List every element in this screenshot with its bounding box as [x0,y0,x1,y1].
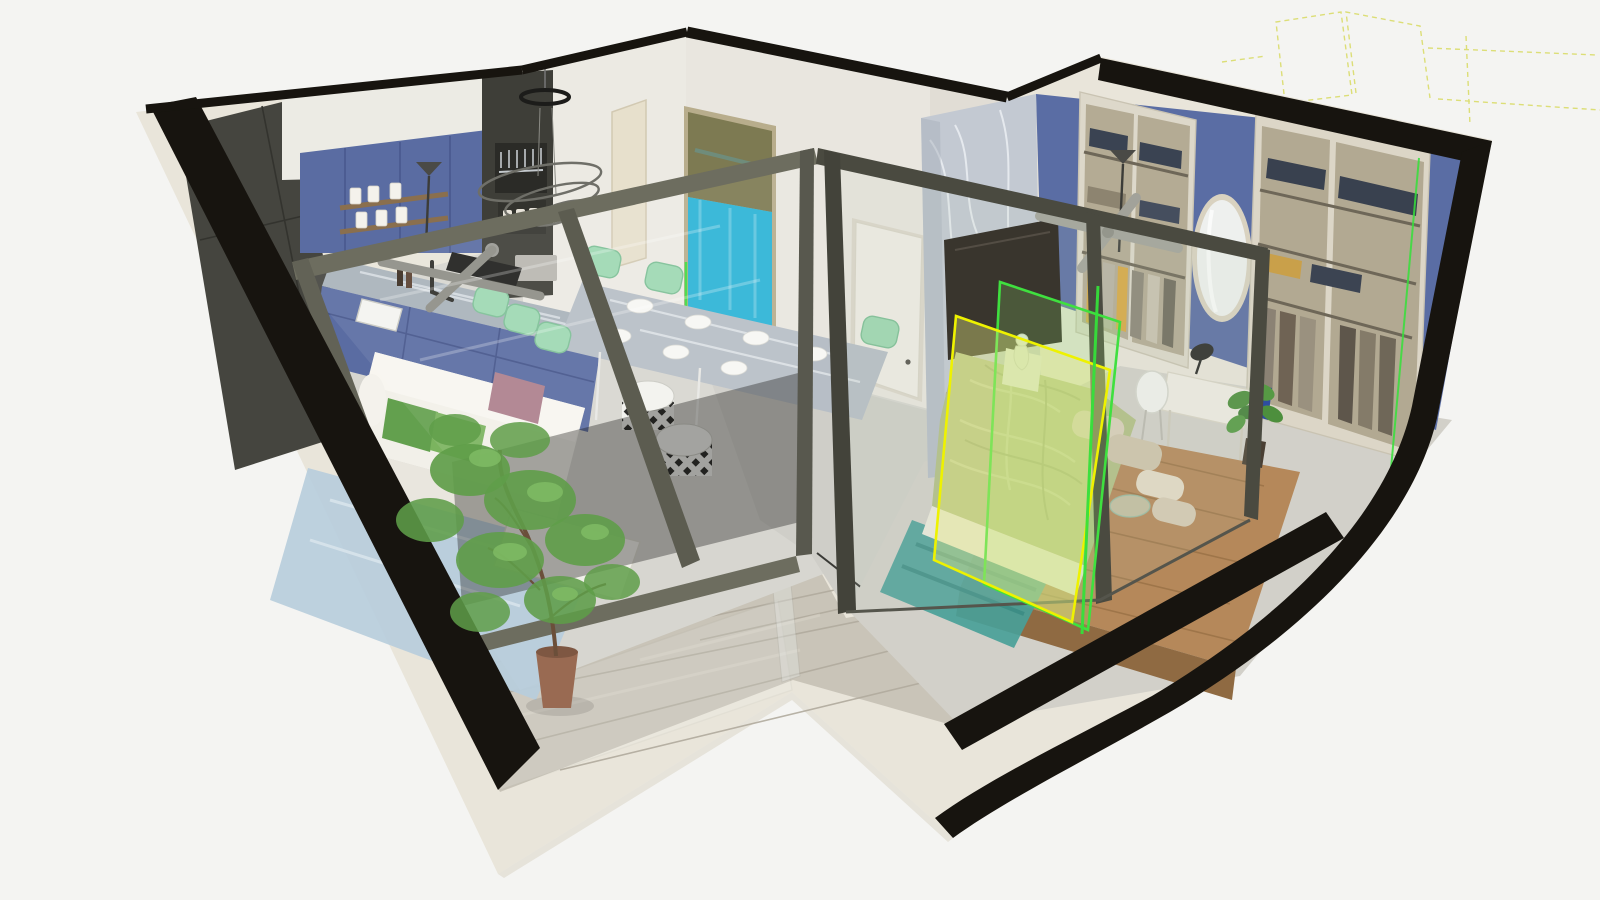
terracotta-pot [536,652,578,708]
render-viewport[interactable]: Photorealistic 3D cutaway (dollhouse) re… [0,0,1600,900]
